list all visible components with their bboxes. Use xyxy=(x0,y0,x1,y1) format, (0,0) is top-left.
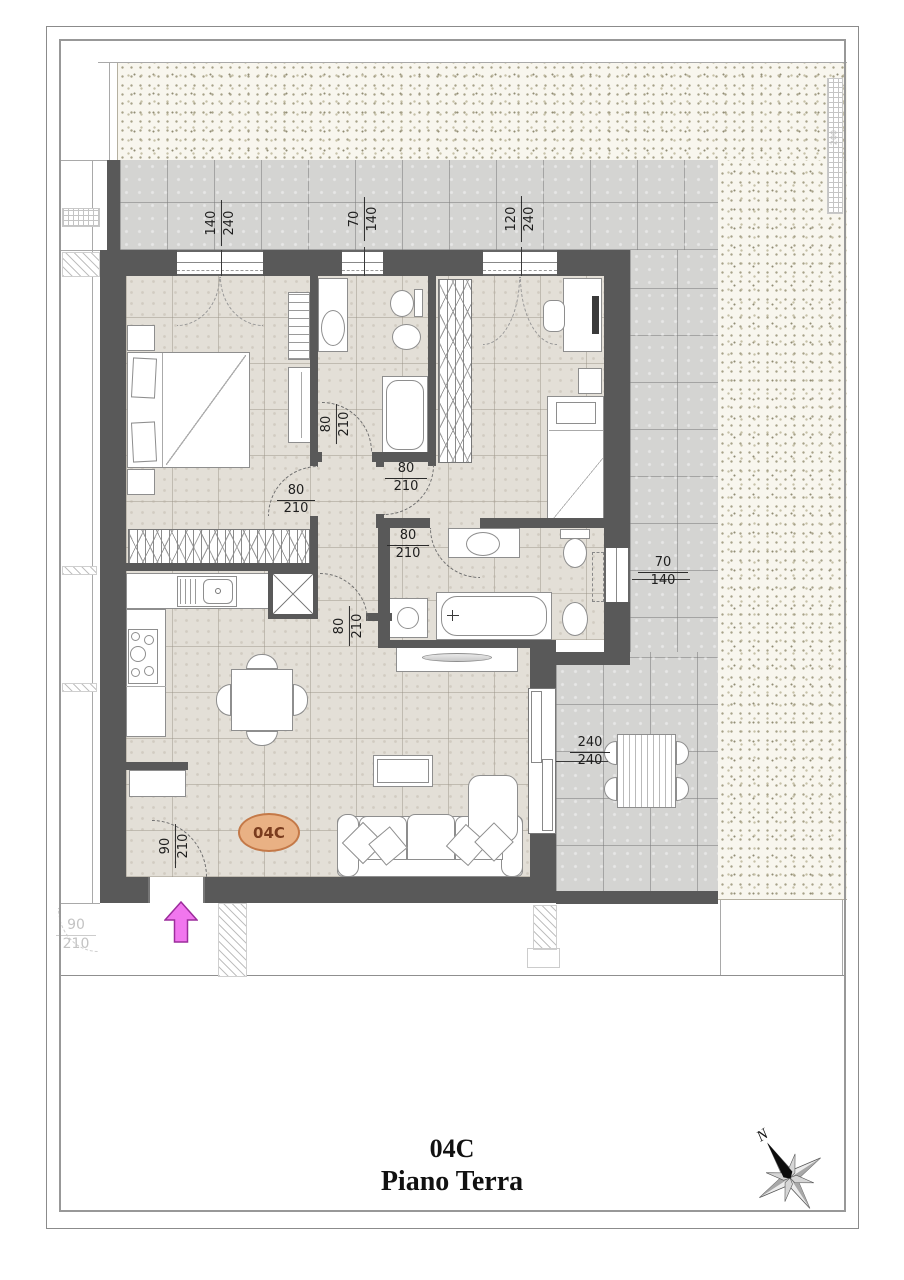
compass-rose-icon: N xyxy=(742,1120,838,1224)
floor-plan-page: 200 xyxy=(0,0,904,1280)
inner-frame xyxy=(59,39,846,1212)
compass-north-label: N xyxy=(753,1125,772,1146)
title-unit-text: 04C xyxy=(430,1134,475,1163)
title-floor-text: Piano Terra xyxy=(381,1166,523,1197)
